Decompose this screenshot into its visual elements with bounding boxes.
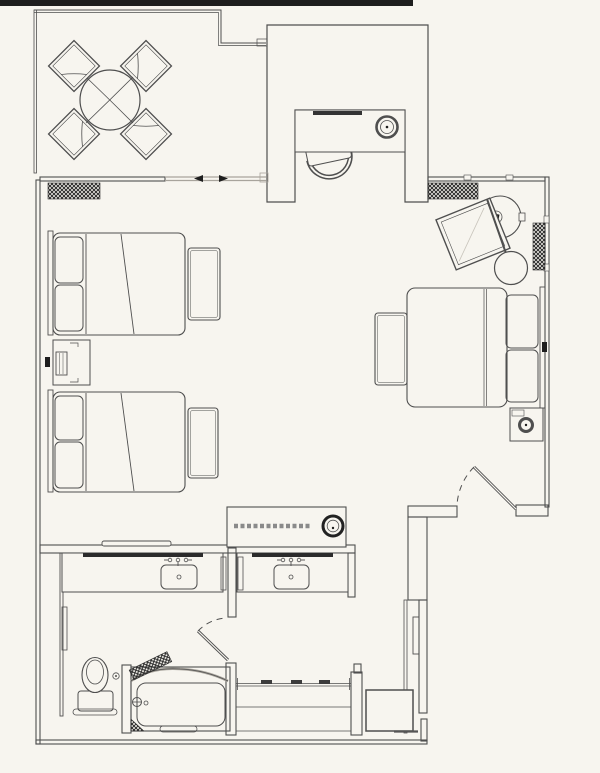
vanity-mirror xyxy=(252,553,333,557)
vanity-mirror xyxy=(83,553,203,557)
vanity-counter xyxy=(62,553,223,592)
hanger xyxy=(319,680,330,684)
floor-plan: Hotel guest room floor plan xyxy=(0,0,600,773)
coffee-maker xyxy=(323,516,343,536)
desk-edge-detail xyxy=(313,111,362,115)
drapery-north xyxy=(428,183,478,199)
nightstand xyxy=(53,340,90,385)
top-edge-wall xyxy=(0,0,413,6)
hanger xyxy=(261,680,272,684)
drapery-east xyxy=(533,223,545,270)
desk-lamp-center xyxy=(386,126,389,129)
vanity-1 xyxy=(62,553,226,592)
king-bed-mattress xyxy=(407,288,507,407)
toilet-tank xyxy=(78,691,113,711)
king-table-lamp-center xyxy=(525,424,527,426)
floor-lamp-shade xyxy=(495,252,528,285)
wall-outlet xyxy=(542,342,547,352)
toilet-bowl xyxy=(82,658,108,693)
window-mullion xyxy=(464,175,471,180)
coffee-maker-center xyxy=(332,527,334,529)
wall-shelf xyxy=(102,541,171,546)
window-mullion xyxy=(506,175,513,180)
luggage-rack xyxy=(366,690,413,731)
media-console xyxy=(227,507,346,547)
window-mullion xyxy=(544,216,549,223)
hanger xyxy=(291,680,302,684)
door-stop-center xyxy=(115,675,117,677)
wall-outlet xyxy=(45,357,50,367)
vanity-2 xyxy=(237,553,348,592)
floor-plan-canvas: Hotel guest room floor plan xyxy=(0,0,600,773)
twin-bed-mattress xyxy=(53,233,185,335)
drapery-balcony xyxy=(48,183,100,199)
side-table-handle xyxy=(519,213,525,221)
